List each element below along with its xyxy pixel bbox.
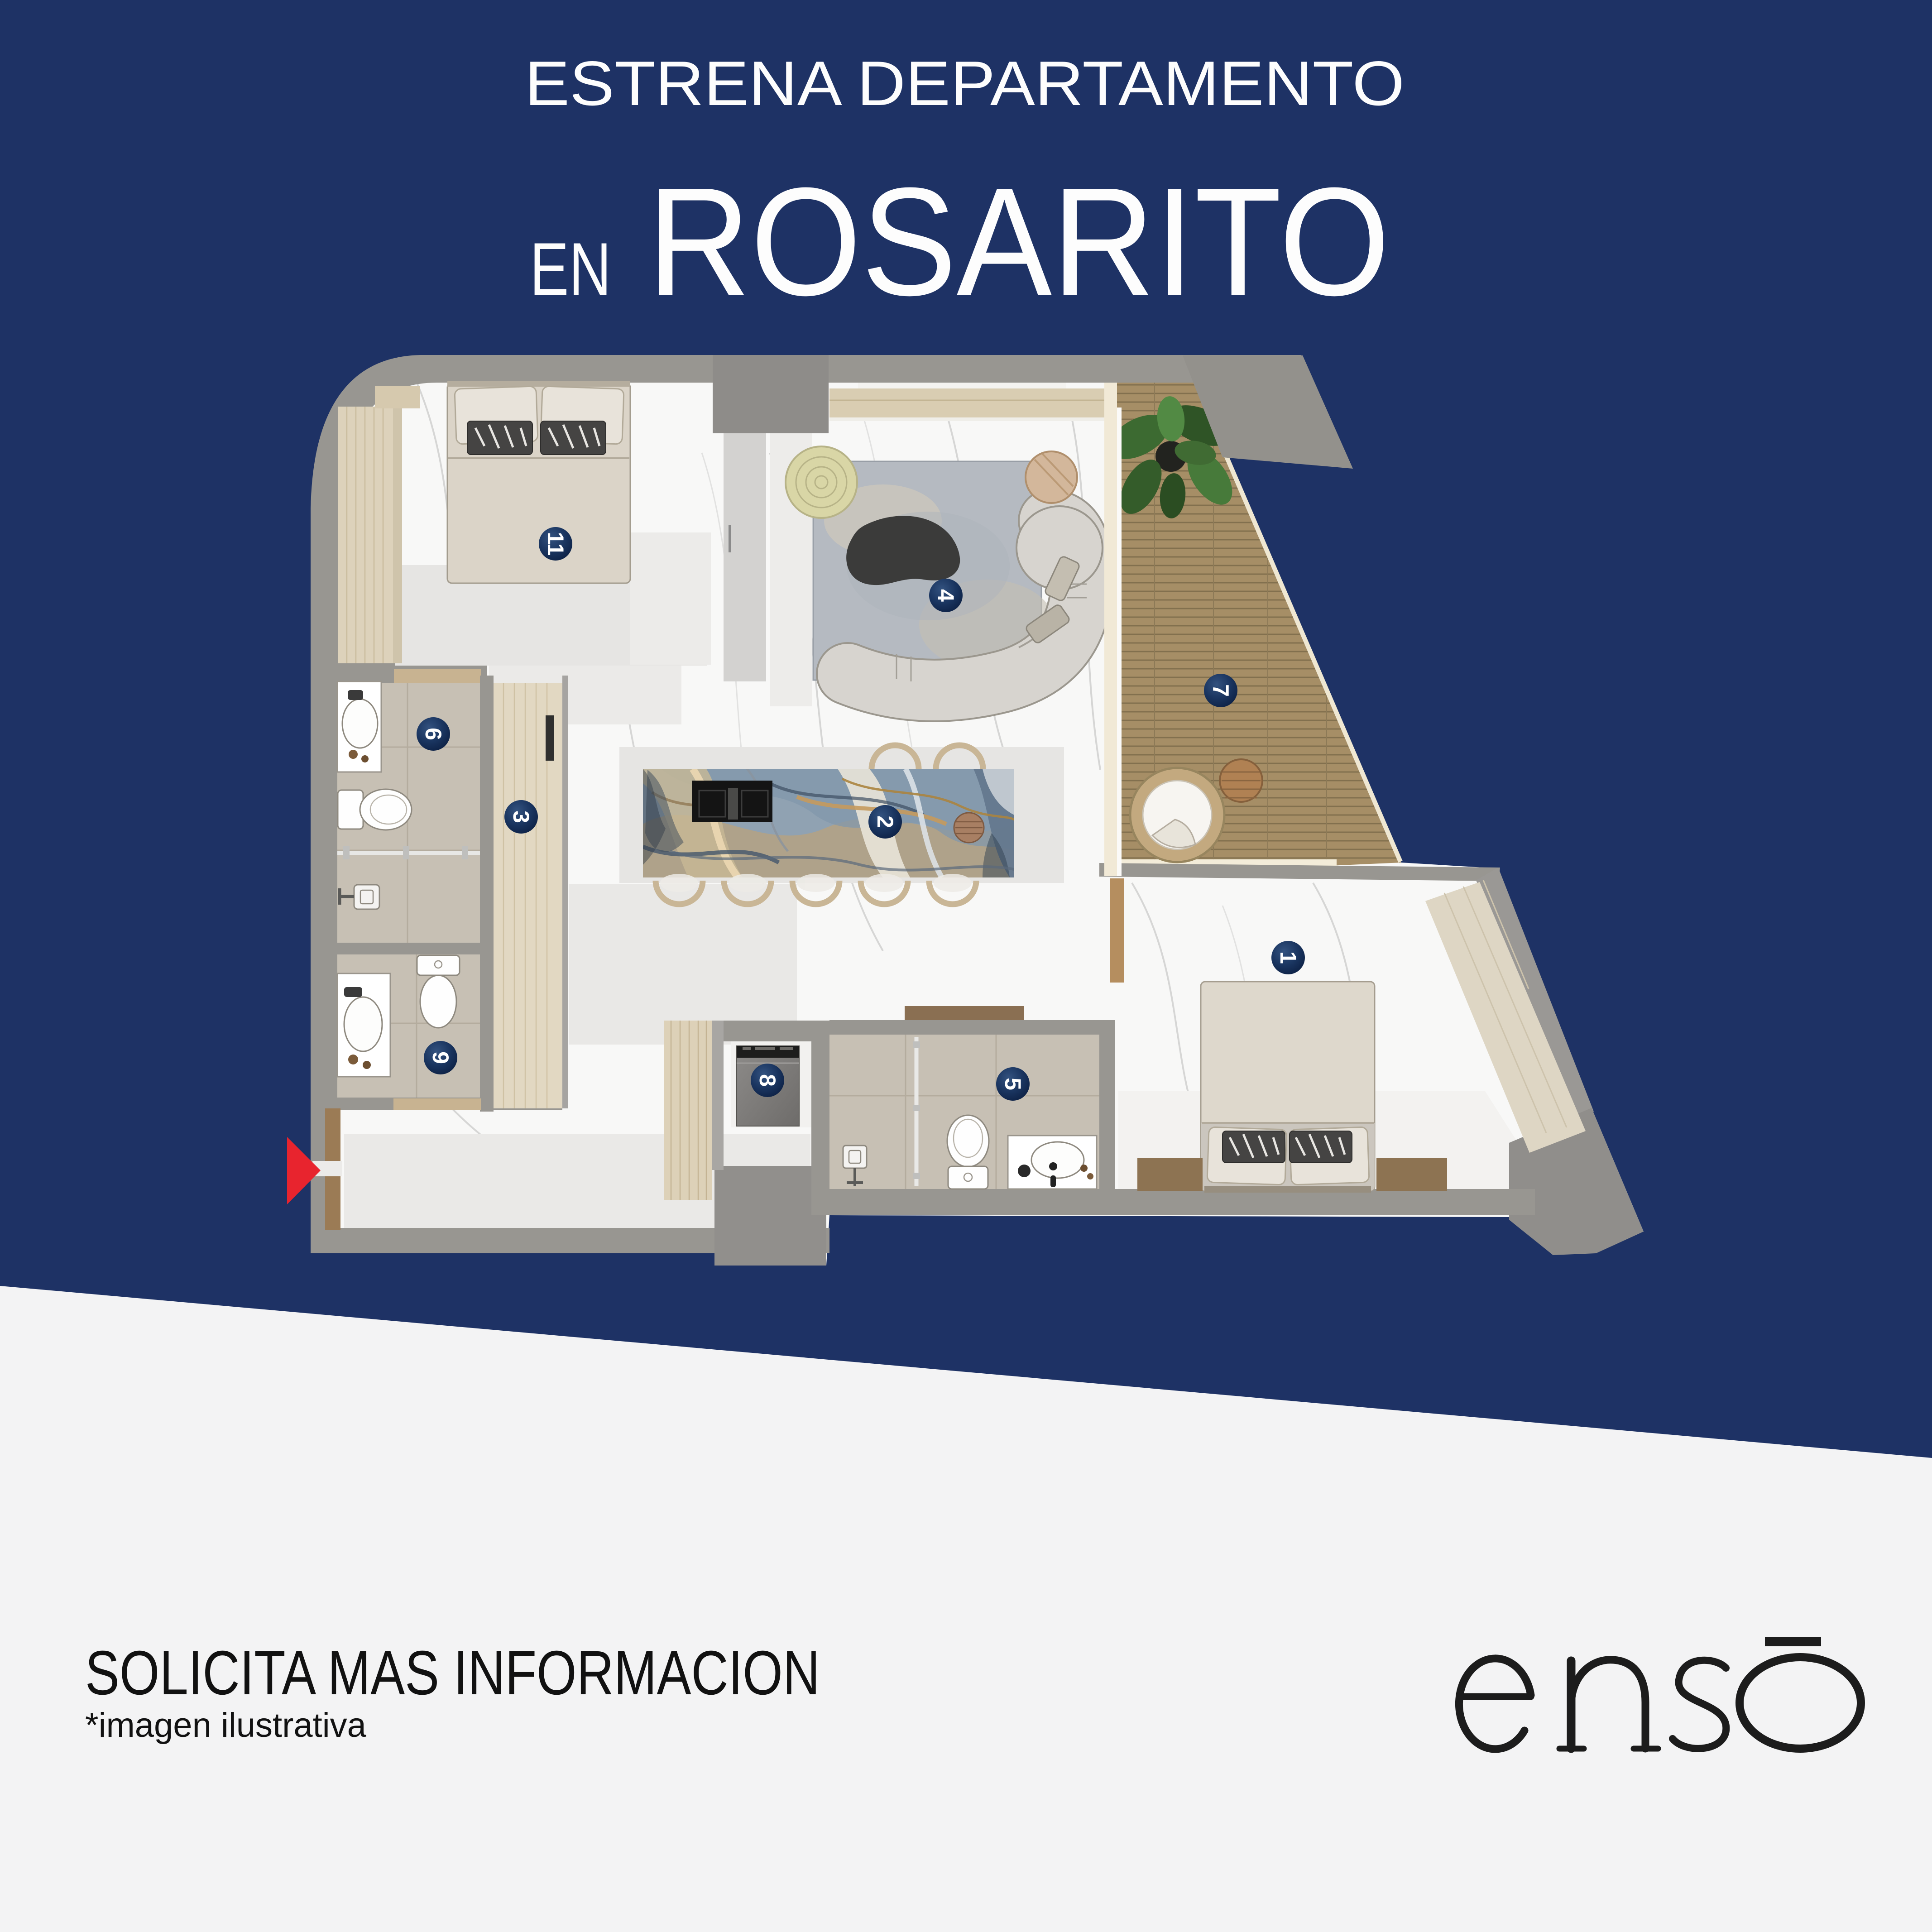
svg-text:SOLICITA MAS INFORMACION: SOLICITA MAS INFORMACION [85, 1638, 820, 1708]
svg-text:8: 8 [755, 1074, 780, 1087]
svg-text:4: 4 [933, 589, 959, 602]
svg-text:11: 11 [543, 532, 568, 556]
svg-text:5: 5 [1000, 1078, 1026, 1090]
svg-text:1: 1 [1275, 951, 1301, 964]
svg-text:ESTRENA DEPARTAMENTO: ESTRENA DEPARTAMENTO [525, 48, 1405, 119]
svg-text:2: 2 [873, 815, 898, 828]
svg-text:7: 7 [1208, 684, 1233, 697]
svg-text:EN: EN [530, 227, 611, 311]
svg-text:*imagen ilustrativa: *imagen ilustrativa [85, 1706, 367, 1745]
svg-text:6: 6 [421, 728, 446, 740]
svg-text:3: 3 [508, 810, 534, 823]
svg-text:ROSARITO: ROSARITO [647, 156, 1390, 328]
svg-text:9: 9 [428, 1051, 453, 1064]
